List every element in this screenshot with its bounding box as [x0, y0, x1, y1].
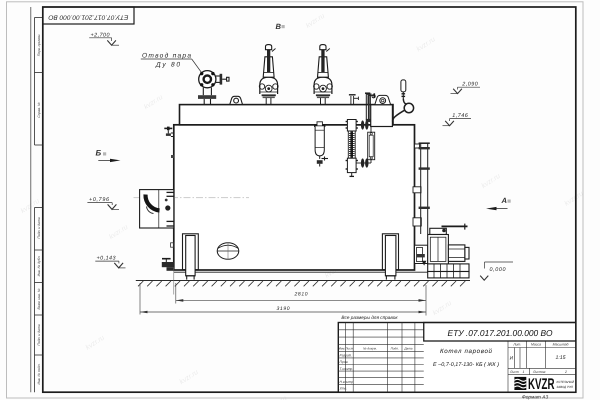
svg-text:0,000: 0,000	[490, 267, 506, 273]
svg-text:Подп.: Подп.	[391, 347, 399, 351]
svg-text:Подп. и дата: Подп. и дата	[37, 324, 41, 345]
svg-text:Н.контр.: Н.контр.	[340, 380, 354, 384]
svg-text:3190: 3190	[277, 306, 290, 312]
svg-text:Лит.: Лит.	[512, 343, 521, 347]
svg-text:В: В	[276, 22, 282, 31]
svg-text:Пров.: Пров.	[340, 360, 349, 364]
svg-text:Лист: Лист	[344, 347, 353, 351]
svg-text:Подп. и дата: Подп. и дата	[37, 217, 41, 238]
svg-text:Инв. № подл.: Инв. № подл.	[37, 363, 41, 384]
svg-text:2: 2	[564, 370, 567, 374]
svg-text:А: А	[501, 196, 507, 205]
svg-text:1:15: 1:15	[555, 355, 565, 361]
svg-text:Листов: Листов	[532, 370, 546, 374]
svg-text:ЗАВОД РЭП: ЗАВОД РЭП	[557, 385, 574, 389]
svg-text:+2,700: +2,700	[91, 32, 110, 38]
svg-text:Е –0,7-0,17-130- КБ ( ЖК ): Е –0,7-0,17-130- КБ ( ЖК )	[433, 362, 499, 368]
svg-text:Взам. инв. №: Взам. инв. №	[37, 288, 41, 309]
svg-text:№ докум.: № докум.	[363, 347, 377, 351]
svg-text:Все размеры для справок: Все размеры для справок	[341, 315, 398, 320]
svg-text:Ду 80: Ду 80	[155, 62, 180, 69]
svg-text:Котел паровой: Котел паровой	[440, 348, 493, 355]
svg-text:Дата: Дата	[403, 347, 412, 351]
svg-text:Масса: Масса	[531, 343, 541, 347]
svg-text:+0,143: +0,143	[97, 256, 116, 262]
svg-text:ЕТУ.07.017.201.00.000 ВО: ЕТУ.07.017.201.00.000 ВО	[48, 14, 128, 21]
svg-text:Справ. №: Справ. №	[37, 102, 41, 118]
svg-text:Т.контр.: Т.контр.	[340, 367, 354, 371]
svg-text:Перв. примен.: Перв. примен.	[37, 34, 41, 57]
svg-text:И: И	[510, 356, 514, 362]
svg-text:Лист: Лист	[509, 370, 519, 374]
svg-text:Б: Б	[96, 149, 102, 158]
svg-text:2,090: 2,090	[461, 82, 478, 88]
svg-text:Инв. № дубл.: Инв. № дубл.	[37, 256, 41, 277]
svg-text:Отвод пара: Отвод пара	[142, 53, 191, 60]
svg-text:2810: 2810	[294, 291, 308, 297]
svg-text:Формат А3: Формат А3	[522, 395, 549, 400]
svg-text:Разраб.: Разраб.	[340, 354, 352, 358]
svg-text:ЕТУ .07.017.201.00.000 ВО: ЕТУ .07.017.201.00.000 ВО	[448, 328, 553, 338]
svg-text:1,746: 1,746	[452, 113, 468, 119]
svg-text:+0,796: +0,796	[89, 197, 109, 203]
svg-text:Утв.: Утв.	[340, 387, 348, 391]
svg-text:КОТЕЛЬНЫЙ: КОТЕЛЬНЫЙ	[557, 380, 575, 384]
svg-text:1: 1	[523, 370, 525, 374]
svg-text:Масштаб: Масштаб	[553, 343, 569, 347]
svg-text:KVZR: KVZR	[528, 376, 555, 393]
